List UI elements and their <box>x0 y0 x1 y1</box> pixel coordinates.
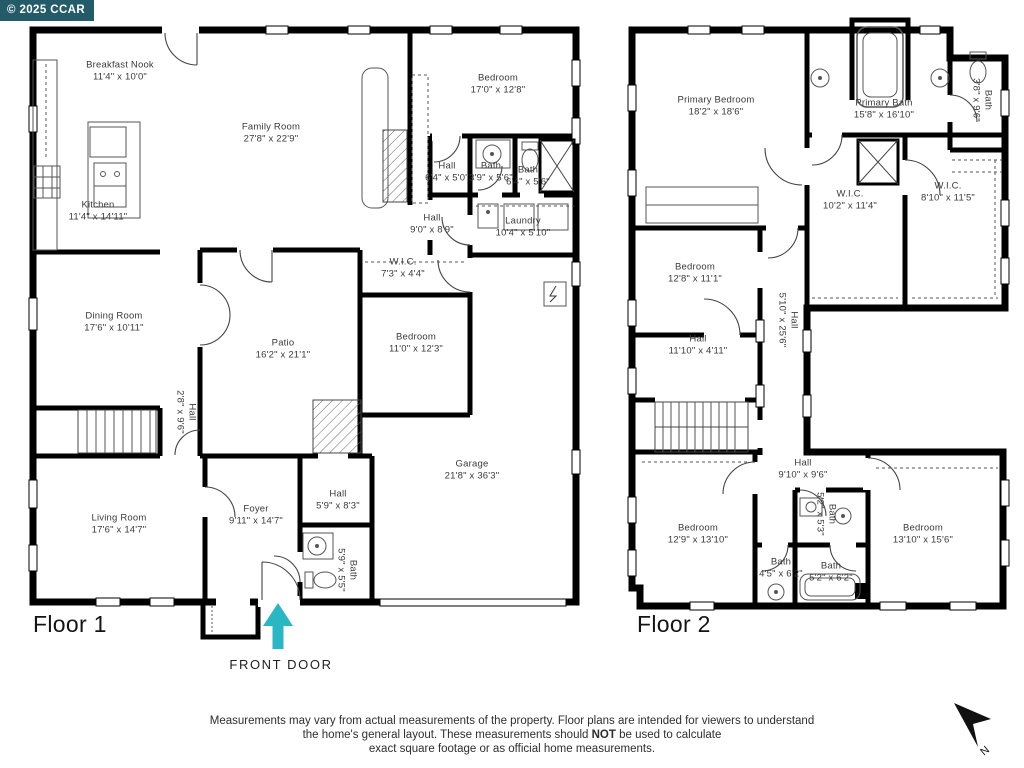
floor2-openings <box>704 95 955 550</box>
room-label-family-room: Family Room27'8" x 22'9" <box>242 122 300 145</box>
room-label-hall-4: Hall5'9" x 8'3" <box>316 489 360 512</box>
room-label-bedroom-b: Bedroom12'9" x 13'10" <box>668 523 728 546</box>
room-label-hall-1: Hall6'4" x 5'0" <box>425 161 469 184</box>
room-label-wic: W.I.C.7'3" x 4'4" <box>381 257 425 280</box>
room-label-bath-a: Bath4'5" x 6'2" <box>759 557 803 580</box>
floor1-door-arcs <box>165 33 502 600</box>
room-label-hall-2: Hall9'0" x 8'9" <box>410 213 454 236</box>
disclaimer-text: Measurements may vary from actual measur… <box>182 714 842 756</box>
copyright-badge: © 2025 CCAR <box>0 0 94 21</box>
room-label-primary-bath: Primary Bath15'8" x 16'10" <box>854 98 914 121</box>
room-label-primary-bedroom: Primary Bedroom18'2" x 18'6" <box>678 95 755 118</box>
room-label-bedroom-2: Bedroom11'0" x 12'3" <box>389 332 443 355</box>
room-label-dining-room: Dining Room17'6" x 10'11" <box>84 311 143 334</box>
room-label-hall-a: Hall11'10" x 4'11" <box>669 334 728 357</box>
front-door-label: FRONT DOOR <box>229 657 332 672</box>
room-label-kitchen: Kitchen11'4" x 14'11" <box>69 200 128 223</box>
room-label-bath-b: Bath5'2" x 6'2" <box>809 561 853 584</box>
room-label-bath-c: Bath5'2" x 5'3" <box>815 492 838 536</box>
room-label-bedroom-a: Bedroom12'8" x 11'1" <box>668 262 722 285</box>
room-label-laundry: Laundry10'4" x 5'10" <box>496 216 551 239</box>
room-label-hall-3: Hall2'8" x 9'6" <box>175 390 198 434</box>
room-label-bedroom-c: Bedroom13'10" x 15'6" <box>893 523 953 546</box>
disclaimer-line2-bold: NOT <box>592 729 616 741</box>
floor1-title: Floor 1 <box>33 611 107 638</box>
disclaimer-line2-post: be used to calculate <box>616 729 722 741</box>
room-label-patio: Patio16'2" x 21'1" <box>256 338 311 361</box>
room-label-bath-3: Bath5'9" x 5'5" <box>336 548 359 592</box>
room-label-bath-wing: Bath3'8" x 9'6" <box>971 78 994 122</box>
room-label-foyer: Foyer9'11" x 14'7" <box>229 504 283 527</box>
disclaimer-line3: exact square footage or as official home… <box>369 743 655 755</box>
floor1-openings <box>162 25 544 607</box>
room-label-hall-c: Hall9'10" x 9'6" <box>778 458 827 481</box>
room-label-living-room: Living Room17'6" x 14'7" <box>91 513 146 536</box>
floor2-title: Floor 2 <box>637 611 711 638</box>
floor2-stairs <box>655 402 748 452</box>
room-label-wic-1: W.I.C.10'2" x 11'4" <box>823 189 877 212</box>
room-label-bath-2: Bath6'4" x 5'6" <box>506 165 550 188</box>
floor1-interior-walls <box>33 30 576 637</box>
floorplan-page: N © 2025 CCAR Breakfast Nook11'4" x 10'0… <box>0 0 1024 768</box>
room-label-wic-2: W.I.C.8'10" x 11'5" <box>921 181 975 204</box>
disclaimer-line1: Measurements may vary from actual measur… <box>210 715 814 727</box>
north-label: N <box>978 744 992 758</box>
room-label-garage: Garage21'8" x 36'3" <box>445 459 500 482</box>
room-label-breakfast-nook: Breakfast Nook11'4" x 10'0" <box>86 60 154 83</box>
north-arrow-icon: N <box>954 703 992 758</box>
disclaimer-line2-pre: the home's general layout. These measure… <box>303 729 592 741</box>
front-door-arrow-icon <box>263 603 293 649</box>
room-label-hall-b: Hall5'10" x 25'6" <box>777 293 800 348</box>
room-label-bedroom-1: Bedroom17'0" x 12'8" <box>471 73 526 96</box>
